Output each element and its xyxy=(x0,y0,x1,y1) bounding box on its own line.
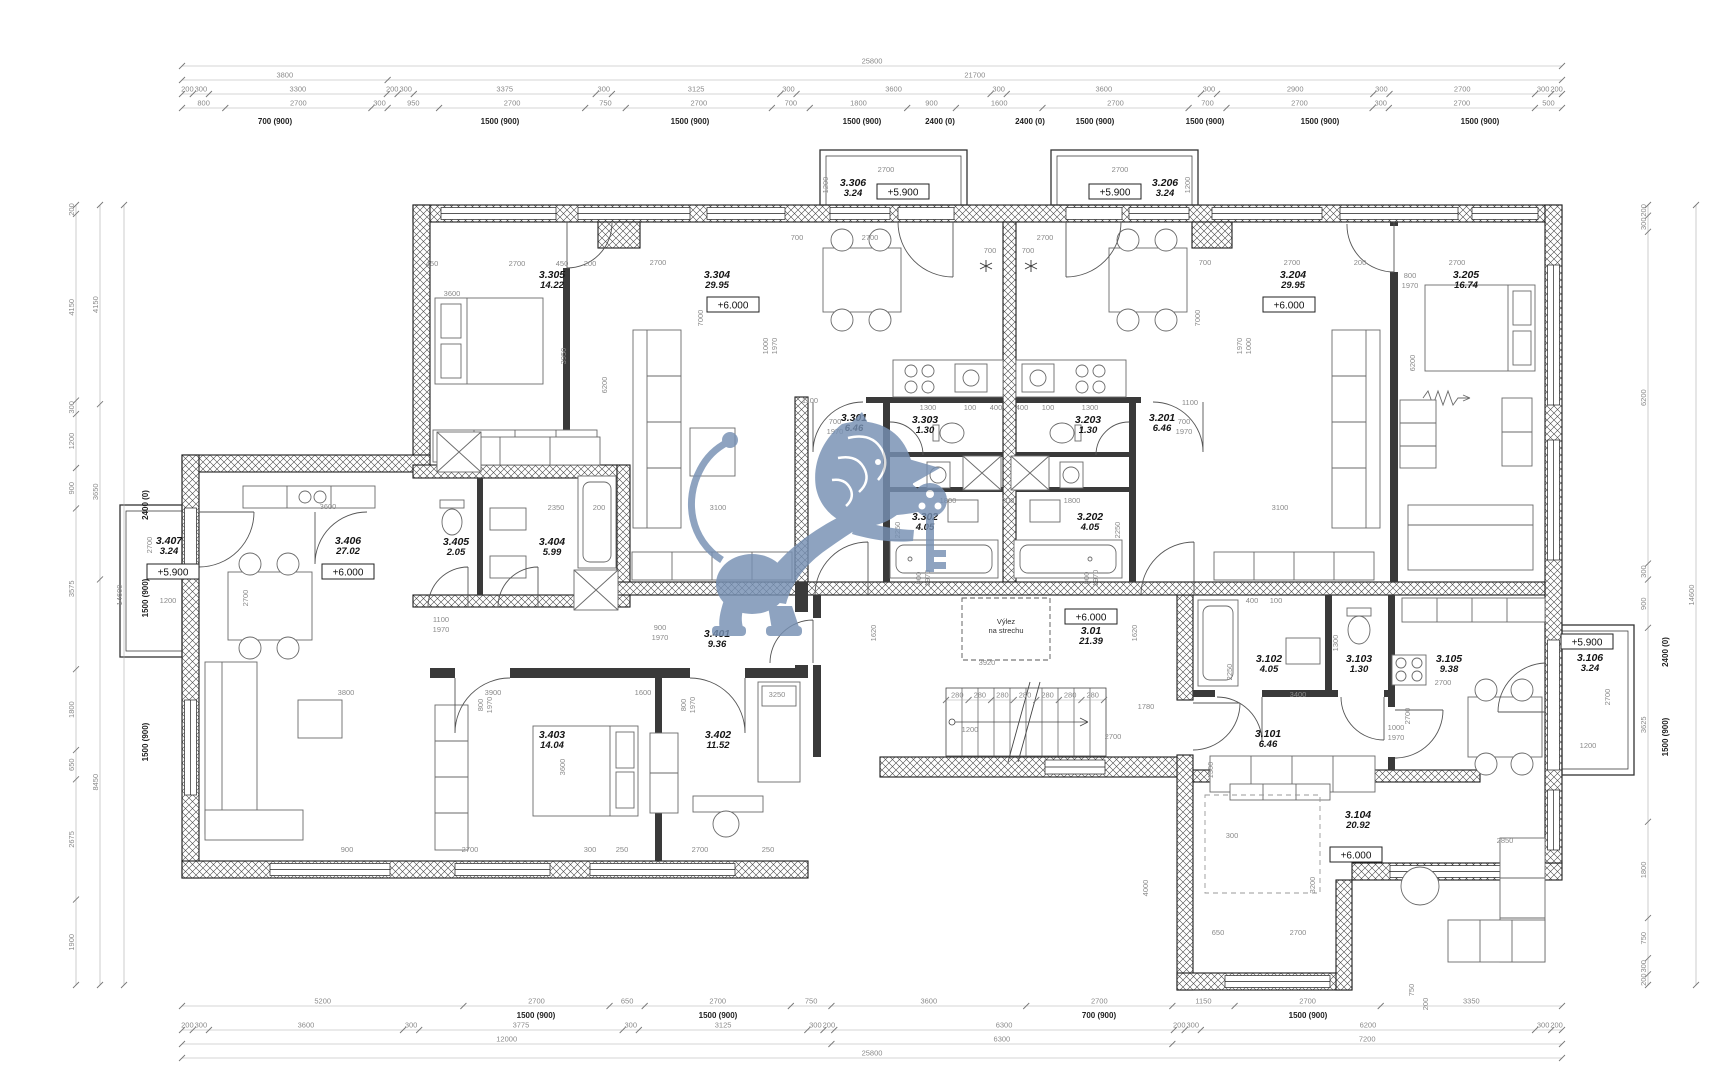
dim-label: 2350 xyxy=(548,503,565,512)
dim-label: 700 xyxy=(984,246,997,255)
dim-label: 1500 (900) xyxy=(517,1011,556,1020)
dim-label: 14600 xyxy=(115,585,124,606)
dim-label: 2700 xyxy=(1454,99,1471,108)
dim-label: 2700 xyxy=(1112,165,1129,174)
dim-label: 1500 (900) xyxy=(843,117,882,126)
dim-label: 250 xyxy=(616,845,629,854)
dim-label: 300 xyxy=(195,85,208,94)
dim-label: 2700 xyxy=(1291,99,1308,108)
dim-label: 700 (900) xyxy=(1082,1011,1117,1020)
dim-label: 21700 xyxy=(964,71,985,80)
dim-label: 4150 xyxy=(91,296,100,313)
dim-label: 25800 xyxy=(862,1049,883,1058)
dim-label: 300 xyxy=(584,845,597,854)
elevation-label: +6.000 xyxy=(1076,613,1107,624)
dim-label: 2675 xyxy=(67,831,76,848)
dim-label: 200 xyxy=(181,1021,194,1030)
dim-label: 1970 xyxy=(1176,427,1193,436)
dim-label: 200 xyxy=(1002,496,1015,505)
dim-label: 2700 xyxy=(462,845,479,854)
dim-label: 300 xyxy=(1639,565,1648,578)
room-area-label: 4.05 xyxy=(1259,664,1279,675)
dim-label: 1200 xyxy=(962,725,979,734)
dim-label: 1970 xyxy=(652,633,669,642)
dim-label: 200 xyxy=(67,203,76,216)
dim-label: 2700 xyxy=(528,997,545,1006)
dim-label: 1500 (900) xyxy=(1186,117,1225,126)
dim-label: 900 xyxy=(1639,597,1648,610)
floor-plan-svg: Floor plan drawing — level +6.000, apart… xyxy=(0,0,1733,1080)
carpet-outline xyxy=(1205,795,1320,893)
annotation-label: na strechu xyxy=(988,626,1023,635)
dim-label: 7000 xyxy=(696,310,705,327)
dim-label: 1800 xyxy=(67,701,76,718)
dim-label: 3920 xyxy=(979,658,996,667)
room-area-label: 6.46 xyxy=(1259,739,1278,750)
room-area-label: 2.05 xyxy=(446,547,466,558)
dim-label: 1100 xyxy=(802,396,818,405)
dim-label: 450 xyxy=(426,259,439,268)
dim-label: 200 xyxy=(386,85,399,94)
elevation-label: +6.000 xyxy=(718,301,749,312)
dim-label: 2400 (0) xyxy=(141,490,150,520)
dim-label: 300 xyxy=(1374,99,1387,108)
dim-label: 1970 xyxy=(1091,570,1100,587)
dim-label: 700 xyxy=(1178,417,1191,426)
dim-label: 950 xyxy=(407,99,420,108)
dim-label: 750 xyxy=(805,997,818,1006)
dim-label: 200 xyxy=(1173,1021,1186,1030)
dim-label: 280 xyxy=(974,691,987,700)
dim-label: 1100 xyxy=(1182,398,1198,407)
dim-label: 280 xyxy=(1064,691,1077,700)
annotations: Výlezna strechu xyxy=(988,617,1023,635)
dim-label: 200 xyxy=(584,259,597,268)
dim-label: 200 xyxy=(1639,973,1648,986)
dim-label: 3125 xyxy=(715,1021,732,1030)
dim-label: 2700 xyxy=(1037,233,1054,242)
dim-label: 1620 xyxy=(1130,625,1139,642)
dim-label: 300 xyxy=(992,85,1005,94)
room-area-label: 5.99 xyxy=(543,547,562,558)
dim-label: 300 xyxy=(625,1021,638,1030)
dim-label: 750 xyxy=(1639,932,1648,945)
dim-label: 1970 xyxy=(1402,281,1419,290)
dim-label: 280 xyxy=(951,691,964,700)
room-area-label: 3.24 xyxy=(1581,663,1600,674)
dim-label: 300 xyxy=(1639,217,1648,230)
dim-label: 7000 xyxy=(1193,310,1202,327)
room-area-label: 16.74 xyxy=(1454,280,1478,291)
dim-label: 500 xyxy=(1542,99,1555,108)
dim-label: 3650 xyxy=(91,483,100,500)
room-area-label: 9.38 xyxy=(1440,664,1459,675)
dim-label: 2400 (0) xyxy=(1661,637,1670,667)
dim-label: 2700 xyxy=(650,258,667,267)
dim-label: 200 xyxy=(1550,85,1563,94)
dim-label: 1600 xyxy=(635,688,652,697)
dim-label: 1500 (900) xyxy=(1461,117,1500,126)
dim-label: 280 xyxy=(996,691,1009,700)
dim-label: 2700 xyxy=(290,99,307,108)
dim-label: 280 xyxy=(1041,691,1054,700)
dim-label: 800 xyxy=(476,699,485,712)
dim-label: 6300 xyxy=(994,1035,1011,1044)
dim-label: 300 xyxy=(373,99,386,108)
dim-label: 200 xyxy=(1354,258,1367,267)
dim-label: 1970 xyxy=(923,570,932,587)
floor-plan-drawing: Floor plan drawing — level +6.000, apart… xyxy=(0,0,1733,1080)
dim-label: 400 xyxy=(1246,596,1259,605)
dim-label: 100 xyxy=(1270,596,1283,605)
dim-label: 1600 xyxy=(991,99,1008,108)
dim-label: 300 xyxy=(1537,85,1550,94)
dim-label: 900 xyxy=(925,99,938,108)
dim-label: 1300 xyxy=(1082,403,1099,412)
dim-label: 3600 xyxy=(558,759,567,776)
dim-label: 1200 xyxy=(821,177,830,194)
dim-label: 1300 xyxy=(1206,762,1215,779)
dim-label: 700 xyxy=(791,233,804,242)
dim-label: 1500 (900) xyxy=(1301,117,1340,126)
dim-label: 1620 xyxy=(869,625,878,642)
room-area-label: 9.36 xyxy=(708,639,727,650)
dim-label: 300 xyxy=(399,85,412,94)
dim-label: 6200 xyxy=(1639,389,1648,406)
dim-label: 1300 xyxy=(920,403,937,412)
dim-label: 6200 xyxy=(1360,1021,1377,1030)
dim-label: 2700 xyxy=(1403,708,1412,725)
dim-label: 100 xyxy=(964,403,977,412)
room-area-label: 6.46 xyxy=(1153,423,1172,434)
room-area-label: 21.39 xyxy=(1078,636,1103,647)
dim-label: 3100 xyxy=(1272,503,1289,512)
dim-label: 3300 xyxy=(290,85,307,94)
dim-label: 1200 xyxy=(1183,177,1192,194)
dim-label: 1800 xyxy=(1064,496,1081,505)
dim-label: 2700 xyxy=(878,165,895,174)
room-area-label: 27.02 xyxy=(335,546,360,557)
dim-label: 300 xyxy=(782,85,795,94)
dim-label: 3400 xyxy=(1290,690,1307,699)
dim-label: 6200 xyxy=(600,377,609,394)
dim-label: 800 xyxy=(1404,271,1417,280)
dim-label: 14600 xyxy=(1687,585,1696,606)
dim-label: 1200 xyxy=(67,433,76,450)
dim-label: 1150 xyxy=(1195,997,1211,1006)
dim-label: 3100 xyxy=(710,503,727,512)
room-area-label: 14.04 xyxy=(540,740,564,751)
dim-label: 12000 xyxy=(496,1035,517,1044)
dim-label: 3600 xyxy=(920,997,937,1006)
dim-label: 1970 xyxy=(1235,338,1244,355)
room-area-label: 29.95 xyxy=(1280,280,1305,291)
room-area-label: 3.24 xyxy=(1156,188,1175,199)
dim-label: 300 xyxy=(598,85,611,94)
dim-label: 1970 xyxy=(1388,733,1405,742)
dim-label: 3600 xyxy=(444,289,461,298)
room-area-label: 14.22 xyxy=(540,280,564,291)
room-area-label: 3.24 xyxy=(844,188,863,199)
elevation-label: +5.900 xyxy=(1100,188,1131,199)
dim-label: 200 xyxy=(181,85,194,94)
dim-label: 400 xyxy=(1016,403,1029,412)
dim-label: 3600 xyxy=(320,502,337,511)
room-area-label: 4.05 xyxy=(1080,522,1100,533)
dim-label: 2700 xyxy=(1284,258,1301,267)
room-area-label: 20.92 xyxy=(1345,820,1370,831)
dim-label: 900 xyxy=(914,572,923,585)
dim-label: 300 xyxy=(195,1021,208,1030)
dim-label: 2900 xyxy=(1287,85,1304,94)
dim-label: 280 xyxy=(1086,691,1099,700)
dim-label: 300 xyxy=(405,1021,418,1030)
dim-label: 1970 xyxy=(433,625,450,634)
dim-label: 2700 xyxy=(1299,997,1316,1006)
dim-label: 2400 (0) xyxy=(1015,117,1045,126)
dim-label: 280 xyxy=(1019,691,1032,700)
dim-label: 6300 xyxy=(996,1021,1013,1030)
dim-label: 3900 xyxy=(485,688,502,697)
dim-label: 4000 xyxy=(1141,880,1150,897)
dim-label: 700 xyxy=(1022,246,1035,255)
elevation-label: +6.000 xyxy=(1341,851,1372,862)
dim-label: 1200 xyxy=(160,596,177,605)
dim-label: 1500 (900) xyxy=(1076,117,1115,126)
dim-label: 2250 xyxy=(1113,522,1122,539)
dim-label: 3200 xyxy=(1308,877,1317,894)
dim-label: 1500 (900) xyxy=(699,1011,738,1020)
room-area-label: 1.30 xyxy=(916,425,935,436)
dim-label: 2700 xyxy=(862,233,879,242)
room-area-label: 3.24 xyxy=(160,546,179,557)
dim-label: 2700 xyxy=(1603,689,1612,706)
dim-label: 650 xyxy=(621,997,634,1006)
annotation-label: Výlez xyxy=(997,617,1016,626)
dim-label: 100 xyxy=(1042,403,1055,412)
dim-label: 3800 xyxy=(338,688,355,697)
dim-label: 200 xyxy=(1550,1021,1563,1030)
dim-label: 1300 xyxy=(1331,635,1340,652)
dim-label: 2700 xyxy=(1107,99,1124,108)
room-area-label: 11.52 xyxy=(706,740,730,751)
dim-label: 300 xyxy=(67,401,76,414)
dim-label: 700 xyxy=(1199,258,1212,267)
dim-label: 1500 (900) xyxy=(141,722,150,761)
dim-label: 2250 xyxy=(1225,664,1234,681)
dim-label: 700 (900) xyxy=(258,117,293,126)
dim-label: 2700 xyxy=(1435,678,1452,687)
dim-label: 450 xyxy=(556,259,569,268)
dim-label: 3125 xyxy=(688,85,705,94)
dim-label: 3250 xyxy=(769,690,786,699)
dim-label: 2700 xyxy=(145,537,154,554)
dim-label: 900 xyxy=(67,482,76,495)
elevation-label: +5.900 xyxy=(888,188,919,199)
dim-label: 650 xyxy=(67,758,76,771)
dim-label: 2700 xyxy=(709,997,726,1006)
dim-label: 1000 xyxy=(1388,723,1405,732)
dim-label: 1500 (900) xyxy=(671,117,710,126)
dim-label: 750 xyxy=(1407,984,1416,997)
room-area-label: 1.30 xyxy=(1079,425,1098,436)
dim-label: 2400 (0) xyxy=(925,117,955,126)
dim-label: 300 xyxy=(1375,85,1388,94)
dim-label: 200 xyxy=(593,503,606,512)
dim-label: 1500 (900) xyxy=(481,117,520,126)
dim-label: 1200 xyxy=(1580,741,1597,750)
dim-label: 1500 (900) xyxy=(141,578,150,617)
dim-label: 650 xyxy=(1212,928,1225,937)
dim-label: 900 xyxy=(654,623,667,632)
dim-label: 700 xyxy=(1201,99,1214,108)
dim-label: 6200 xyxy=(1408,355,1417,372)
dim-label: 3375 xyxy=(496,85,513,94)
elevation-label: +5.900 xyxy=(158,568,189,579)
dim-label: 800 xyxy=(197,99,210,108)
dim-label: 300 xyxy=(1639,960,1648,973)
dim-label: 3575 xyxy=(67,580,76,597)
dim-label: 200 xyxy=(823,1021,836,1030)
dim-label: 1100 xyxy=(433,615,449,624)
dim-label: 300 xyxy=(1226,831,1239,840)
dim-label: 1500 (900) xyxy=(1661,717,1670,756)
dim-label: 2700 xyxy=(241,590,250,607)
dim-label: 3800 xyxy=(276,71,293,80)
dim-label: 2700 xyxy=(1091,997,1108,1006)
dim-label: 1970 xyxy=(770,338,779,355)
dim-label: 300 xyxy=(1186,1021,1199,1030)
dim-label: 2700 xyxy=(509,259,526,268)
dim-label: 2700 xyxy=(1449,258,1466,267)
dim-label: 25800 xyxy=(862,57,883,66)
dim-label: 200 xyxy=(1421,998,1430,1011)
dim-label: 7200 xyxy=(1359,1035,1376,1044)
dim-label: 800 xyxy=(679,699,688,712)
elevation-label: +5.900 xyxy=(1572,638,1603,649)
dim-label: 3350 xyxy=(1463,997,1480,1006)
dim-label: 300 xyxy=(809,1021,822,1030)
dim-label: 3625 xyxy=(1639,716,1648,733)
dim-label: 300 xyxy=(1537,1021,1550,1030)
dim-label: 2850 xyxy=(1497,836,1514,845)
dim-label: 400 xyxy=(990,403,1003,412)
dim-label: 900 xyxy=(1082,572,1091,585)
dim-label: 1970 xyxy=(688,697,697,714)
dim-label: 2700 xyxy=(1454,85,1471,94)
dim-label: 3600 xyxy=(885,85,902,94)
dim-label: 8450 xyxy=(91,774,100,791)
elevation-label: +6.000 xyxy=(333,568,364,579)
dim-label: 250 xyxy=(762,845,775,854)
dim-label: 3950 xyxy=(559,348,568,365)
dim-label: 2700 xyxy=(1290,928,1307,937)
dim-label: 1000 xyxy=(1244,338,1253,355)
dim-label: 300 xyxy=(1203,85,1216,94)
elevation-label: +6.000 xyxy=(1274,301,1305,312)
dim-label: 2700 xyxy=(690,99,707,108)
dim-label: 700 xyxy=(785,99,798,108)
dim-label: 4150 xyxy=(67,299,76,316)
dim-label: 700 xyxy=(829,417,842,426)
dim-label: 2700 xyxy=(504,99,521,108)
dim-label: 3600 xyxy=(298,1021,315,1030)
room-area-label: 29.95 xyxy=(704,280,729,291)
dim-label: 900 xyxy=(341,845,354,854)
dim-label: 3775 xyxy=(513,1021,530,1030)
dim-label: 1970 xyxy=(485,697,494,714)
dim-label: 1780 xyxy=(1138,702,1155,711)
dim-label: 1800 xyxy=(1639,862,1648,879)
dim-label: 1000 xyxy=(761,338,770,355)
dim-label: 200 xyxy=(1639,204,1648,217)
dim-label: 2700 xyxy=(692,845,709,854)
dim-label: 2700 xyxy=(1105,732,1122,741)
room-area-label: 1.30 xyxy=(1350,664,1369,675)
dim-label: 1800 xyxy=(850,99,867,108)
dim-label: 1900 xyxy=(67,934,76,951)
dim-label: 5200 xyxy=(314,997,331,1006)
dim-label: 3600 xyxy=(1095,85,1112,94)
dim-label: 1500 (900) xyxy=(1289,1011,1328,1020)
dim-label: 750 xyxy=(599,99,612,108)
